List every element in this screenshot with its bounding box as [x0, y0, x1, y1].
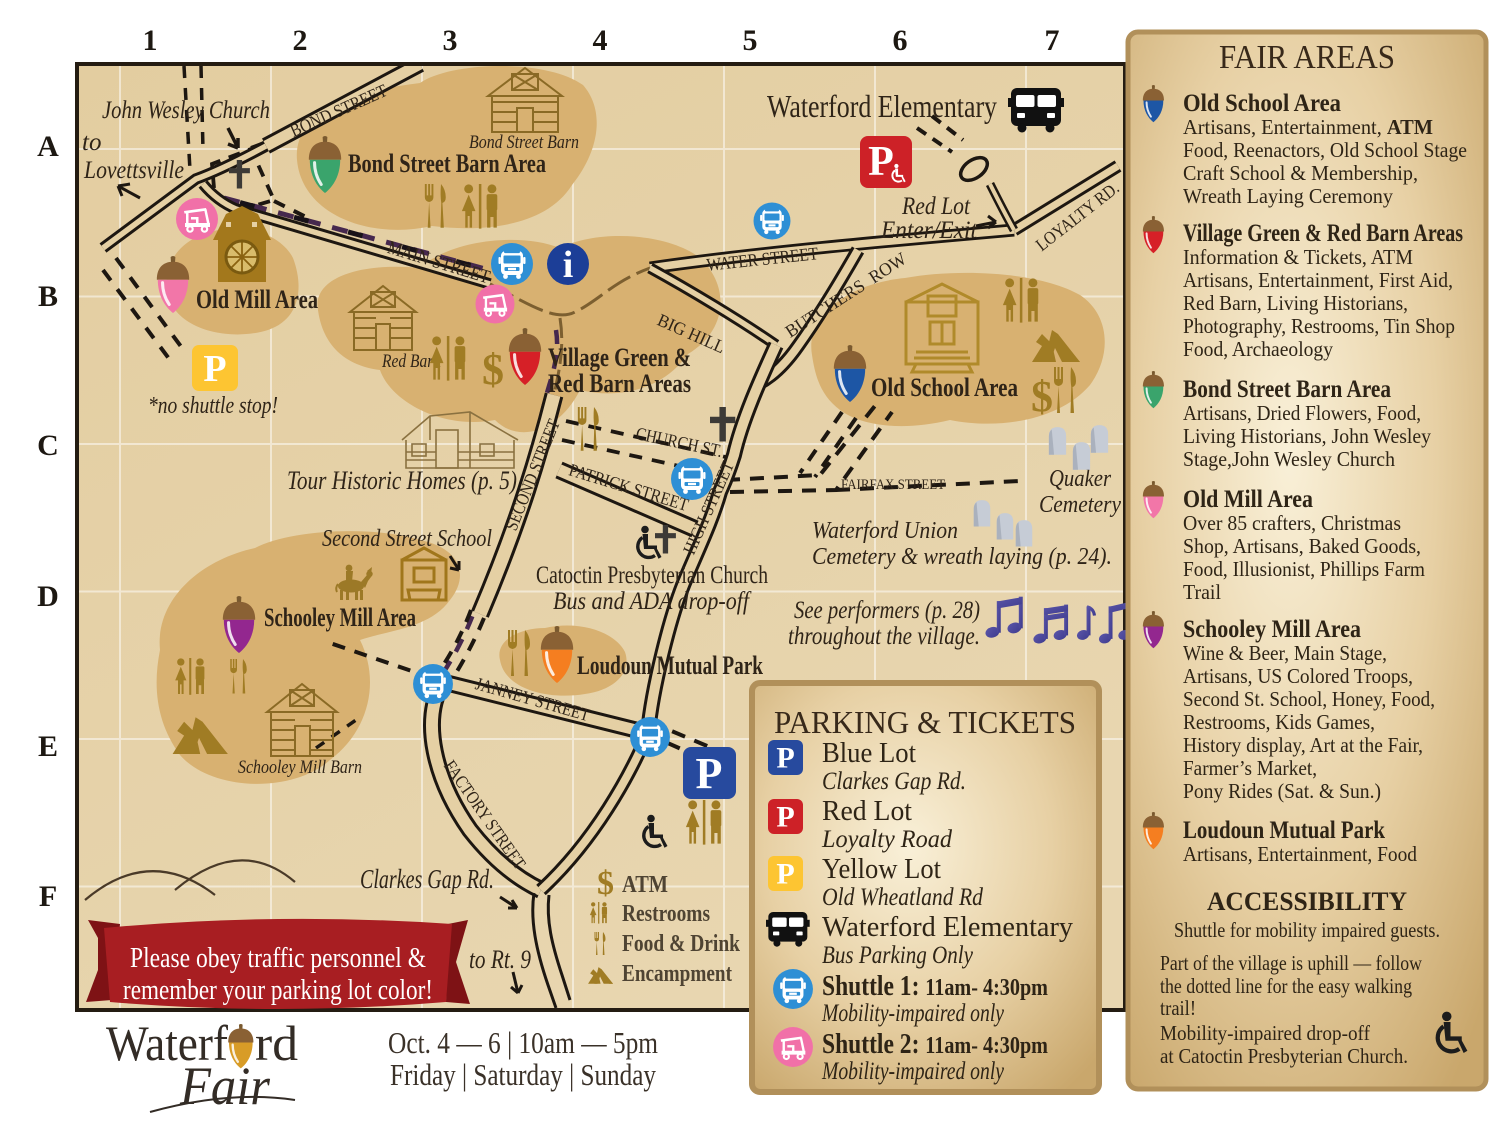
svg-text:Old Mill Area: Old Mill Area: [1183, 486, 1313, 513]
svg-text:Clarkes Gap Rd.: Clarkes Gap Rd.: [360, 864, 494, 894]
svg-text:Please obey traffic personnel: Please obey traffic personnel &: [130, 943, 426, 974]
svg-text:Schooley Mill Barn: Schooley Mill Barn: [238, 757, 362, 778]
svg-text:to: to: [82, 129, 101, 156]
svg-text:Over 85 crafters, Christmas: Over 85 crafters, Christmas: [1183, 511, 1401, 535]
svg-text:Bond Street Barn Area: Bond Street Barn Area: [348, 149, 546, 178]
svg-text:at Catoctin Presbyterian Churc: at Catoctin Presbyterian Church.: [1160, 1044, 1408, 1068]
svg-text:Part of the village is uphill: Part of the village is uphill — follow: [1160, 951, 1423, 975]
svg-text:Wreath Laying Ceremony: Wreath Laying Ceremony: [1183, 184, 1393, 208]
svg-text:P: P: [776, 742, 794, 775]
svg-text:Information & Tickets, ATM: Information & Tickets, ATM: [1183, 245, 1413, 269]
svg-text:trail!: trail!: [1160, 996, 1196, 1020]
svg-text:Mobility-impaired drop-off: Mobility-impaired drop-off: [1160, 1021, 1370, 1045]
svg-text:to Rt. 9: to Rt. 9: [469, 945, 531, 974]
svg-text:Old Mill Area: Old Mill Area: [196, 285, 318, 314]
svg-text:Food, Reenactors, Old School S: Food, Reenactors, Old School Stage: [1183, 138, 1467, 162]
svg-text:F: F: [39, 880, 57, 913]
svg-text:P: P: [776, 801, 794, 834]
svg-text:$: $: [1031, 372, 1053, 421]
svg-text:P: P: [203, 348, 226, 390]
svg-text:the dotted line for the easy w: the dotted line for the easy walking: [1160, 974, 1412, 998]
svg-text:Loyalty Road: Loyalty Road: [821, 826, 952, 853]
svg-text:Photography, Restrooms, Tin Sh: Photography, Restrooms, Tin Shop: [1183, 314, 1455, 338]
svg-text:Restrooms: Restrooms: [622, 901, 710, 927]
svg-text:P: P: [868, 139, 894, 185]
svg-text:Enter/Exit: Enter/Exit: [880, 217, 978, 244]
svg-text:Wine & Beer, Main Stage,: Wine & Beer, Main Stage,: [1183, 641, 1387, 665]
svg-text:Bus Parking Only: Bus Parking Only: [822, 942, 974, 969]
svg-text:Artisans, US Colored Troops,: Artisans, US Colored Troops,: [1183, 664, 1413, 688]
svg-text:Red Lot: Red Lot: [901, 193, 971, 220]
svg-text:Shuttle 1: 11am- 4:30pm: Shuttle 1: 11am- 4:30pm: [822, 971, 1048, 1002]
svg-text:History display, Art at the Fa: History display, Art at the Fair,: [1183, 733, 1423, 757]
svg-text:Encampment: Encampment: [622, 961, 732, 987]
svg-text:Old School Area: Old School Area: [871, 373, 1018, 402]
svg-text:3: 3: [443, 24, 458, 57]
svg-text:Restrooms, Kids Games,: Restrooms, Kids Games,: [1183, 710, 1375, 734]
svg-text:Waterford Union: Waterford Union: [812, 518, 958, 544]
svg-text:Stage,John Wesley Church: Stage,John Wesley Church: [1183, 447, 1395, 471]
svg-text:6: 6: [893, 24, 908, 57]
svg-text:Waterford Elementary: Waterford Elementary: [767, 88, 997, 124]
svg-text:Cemetery & wreath laying (p. 2: Cemetery & wreath laying (p. 24).: [812, 544, 1112, 570]
svg-text:Artisans, Entertainment, First: Artisans, Entertainment, First Aid,: [1183, 268, 1453, 292]
svg-text:Mobility-impaired only: Mobility-impaired only: [821, 1058, 1004, 1085]
svg-text:Friday | Saturday | Sunday: Friday | Saturday | Sunday: [390, 1057, 656, 1092]
svg-text:Yellow Lot: Yellow Lot: [822, 854, 941, 885]
svg-text:PARKING & TICKETS: PARKING & TICKETS: [774, 704, 1076, 740]
svg-text:Food, Illusionist, Phillips Fa: Food, Illusionist, Phillips Farm: [1183, 557, 1425, 581]
svg-text:Red Barn, Living Historians,: Red Barn, Living Historians,: [1183, 291, 1408, 315]
svg-text:D: D: [37, 580, 59, 613]
svg-text:FAIR AREAS: FAIR AREAS: [1219, 39, 1395, 76]
svg-text:Blue Lot: Blue Lot: [822, 738, 916, 769]
svg-text:Loudoun Mutual Park: Loudoun Mutual Park: [1183, 817, 1385, 844]
svg-text:Trail: Trail: [1183, 580, 1221, 604]
svg-text:i: i: [563, 244, 574, 286]
svg-text:Lovettsville: Lovettsville: [83, 157, 184, 184]
svg-text:Artisans, Entertainment, ATM: Artisans, Entertainment, ATM: [1183, 115, 1433, 139]
svg-text:Fair: Fair: [179, 1056, 271, 1116]
svg-text:E: E: [38, 730, 58, 763]
svg-text:Village Green &: Village Green &: [548, 343, 691, 372]
svg-text:P: P: [696, 749, 723, 798]
svg-text:Bus and ADA drop-off: Bus and ADA drop-off: [553, 588, 752, 615]
svg-text:Oct. 4 — 6 | 10am — 5pm: Oct. 4 — 6 | 10am — 5pm: [388, 1025, 658, 1060]
svg-text:Shuttle for mobility impaired: Shuttle for mobility impaired guests.: [1174, 918, 1440, 942]
svg-text:Artisans, Dried Flowers, Food,: Artisans, Dried Flowers, Food,: [1183, 401, 1421, 425]
svg-text:Tour Historic Homes (p. 5): Tour Historic Homes (p. 5): [287, 466, 517, 495]
svg-text:Second St. School, Honey, Food: Second St. School, Honey, Food,: [1183, 687, 1435, 711]
svg-text:$: $: [482, 345, 504, 394]
svg-text:Schooley Mill Area: Schooley Mill Area: [264, 603, 416, 632]
svg-text:Cemetery: Cemetery: [1039, 492, 1121, 518]
svg-text:4: 4: [593, 24, 608, 57]
svg-text:7: 7: [1045, 24, 1060, 57]
svg-text:A: A: [37, 130, 59, 163]
svg-text:ATM: ATM: [622, 872, 668, 898]
svg-text:Old Wheatland Rd: Old Wheatland Rd: [822, 884, 983, 911]
svg-text:Old School Area: Old School Area: [1183, 90, 1341, 117]
svg-text:Catoctin Presbyterian Church: Catoctin Presbyterian Church: [536, 562, 768, 589]
svg-text:B: B: [38, 280, 58, 313]
svg-text:Mobility-impaired only: Mobility-impaired only: [821, 1000, 1004, 1027]
svg-text:remember your parking lot colo: remember your parking lot color!: [123, 975, 433, 1006]
svg-text:throughout the village.: throughout the village.: [788, 623, 980, 650]
svg-text:Artisans, Entertainment, Food: Artisans, Entertainment, Food: [1183, 842, 1417, 866]
svg-text:Pony Rides (Sat. & Sun.): Pony Rides (Sat. & Sun.): [1183, 779, 1381, 803]
svg-text:Village Green & Red Barn Areas: Village Green & Red Barn Areas: [1183, 220, 1463, 247]
svg-text:FAIRFAX STREET: FAIRFAX STREET: [841, 477, 945, 493]
svg-text:Second Street School: Second Street School: [322, 526, 492, 552]
svg-text:Farmer’s Market,: Farmer’s Market,: [1183, 756, 1317, 780]
svg-text:Shop, Artisans, Baked Goods,: Shop, Artisans, Baked Goods,: [1183, 534, 1421, 558]
svg-text:Quaker: Quaker: [1049, 466, 1112, 492]
svg-text:Clarkes Gap Rd.: Clarkes Gap Rd.: [822, 768, 966, 795]
svg-text:Loudoun Mutual Park: Loudoun Mutual Park: [577, 651, 763, 680]
svg-text:Craft School & Membership,: Craft School & Membership,: [1183, 161, 1418, 185]
svg-text:Food, Archaeology: Food, Archaeology: [1183, 337, 1333, 361]
svg-text:Schooley Mill Area: Schooley Mill Area: [1183, 616, 1361, 643]
svg-text:Red Lot: Red Lot: [822, 796, 912, 827]
svg-text:P: P: [776, 858, 794, 891]
svg-text:John Wesley Church: John Wesley Church: [102, 97, 270, 124]
svg-text:1: 1: [143, 24, 158, 57]
svg-text:ACCESSIBILITY: ACCESSIBILITY: [1207, 887, 1407, 916]
svg-text:See performers (p. 28): See performers (p. 28): [794, 597, 980, 624]
svg-text:Food & Drink: Food & Drink: [622, 931, 741, 957]
svg-text:Living Historians, John Wesle: Living Historians, John Wesley: [1183, 424, 1431, 448]
svg-text:$: $: [597, 865, 614, 902]
svg-text:Red Barn Areas: Red Barn Areas: [548, 369, 691, 398]
svg-text:5: 5: [743, 24, 758, 57]
svg-text:*no shuttle stop!: *no shuttle stop!: [148, 393, 278, 419]
svg-text:Waterford Elementary: Waterford Elementary: [822, 912, 1073, 943]
svg-text:2: 2: [293, 24, 308, 57]
svg-text:Shuttle 2: 11am- 4:30pm: Shuttle 2: 11am- 4:30pm: [822, 1029, 1048, 1060]
svg-text:C: C: [37, 429, 59, 462]
svg-text:Bond Street Barn Area: Bond Street Barn Area: [1183, 376, 1391, 403]
